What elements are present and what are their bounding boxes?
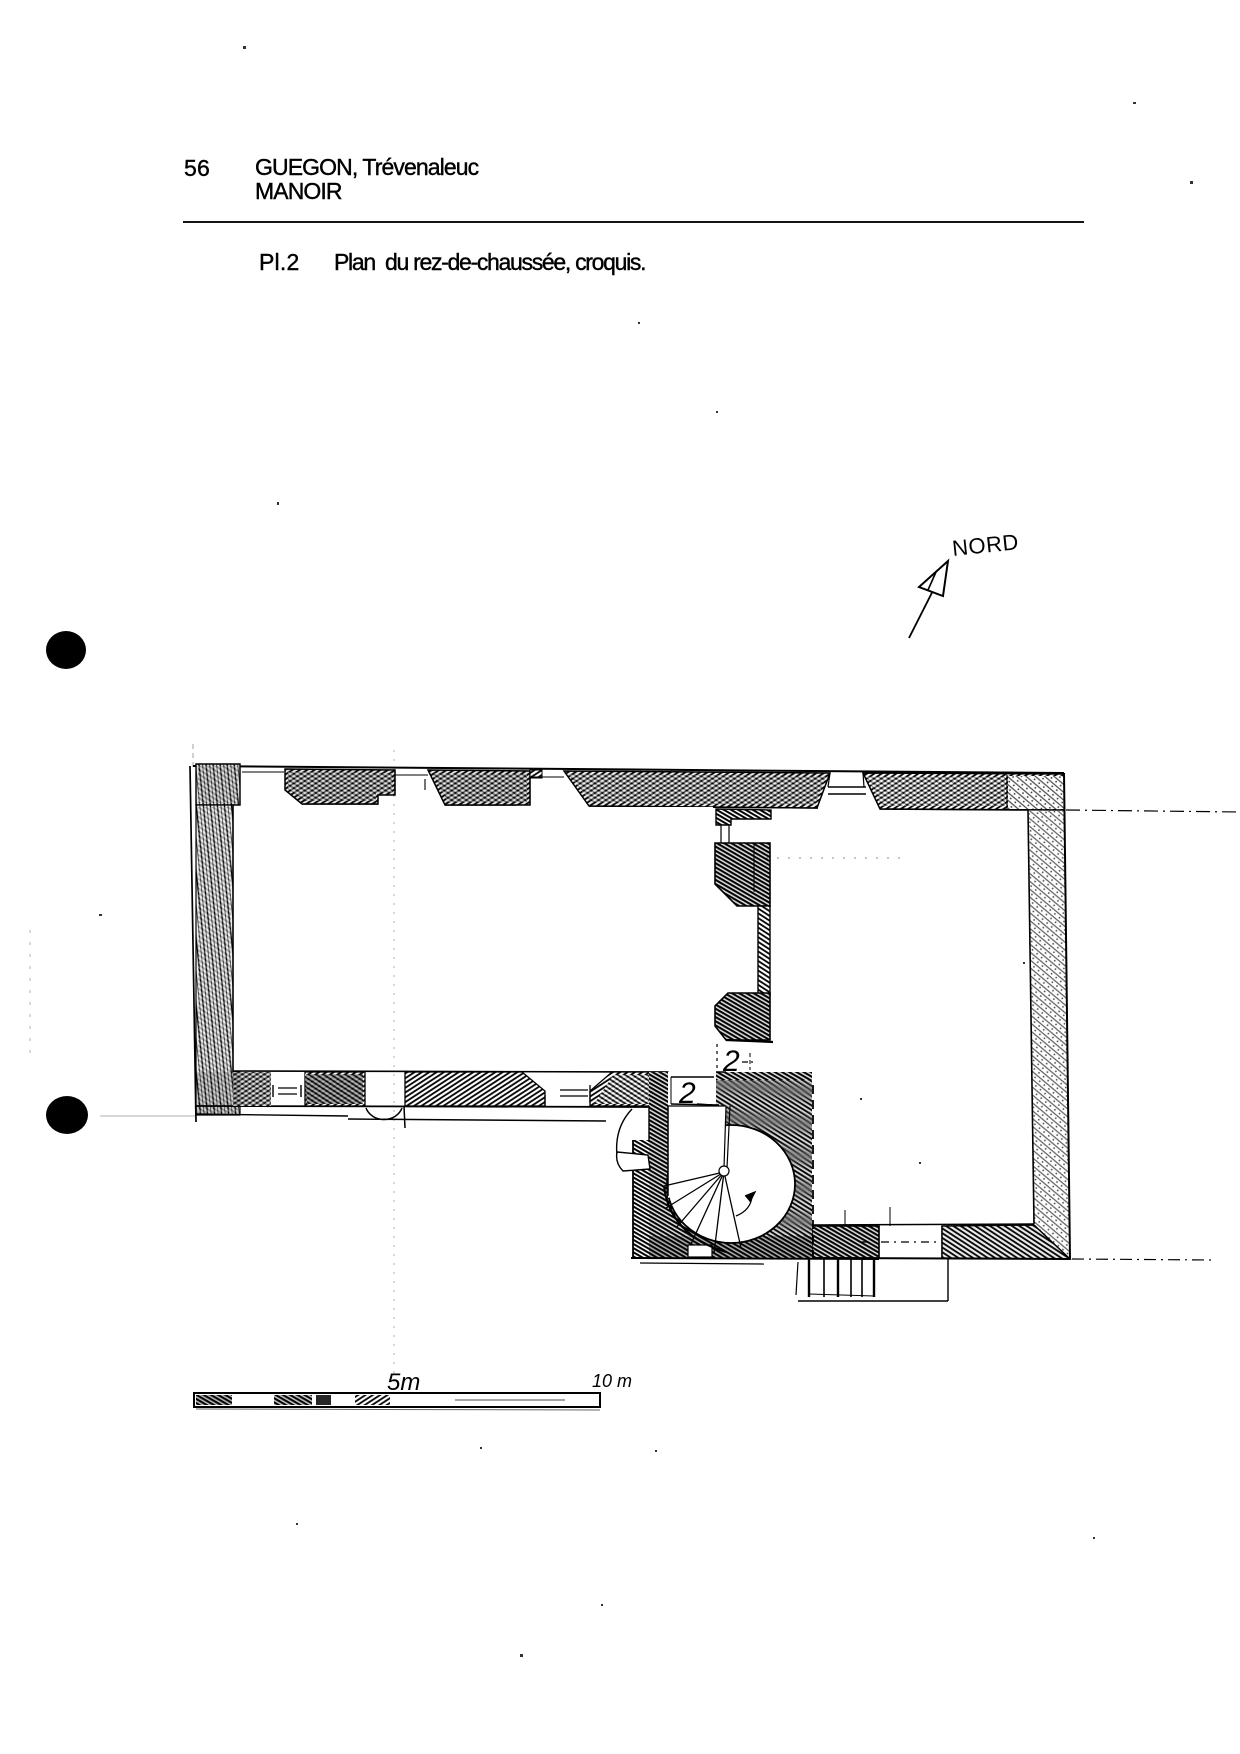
svg-text:10 m: 10 m [592,1371,632,1391]
svg-text:2: 2 [678,1077,696,1110]
svg-text:5m: 5m [387,1369,420,1396]
svg-text:NORD: NORD [951,529,1020,561]
